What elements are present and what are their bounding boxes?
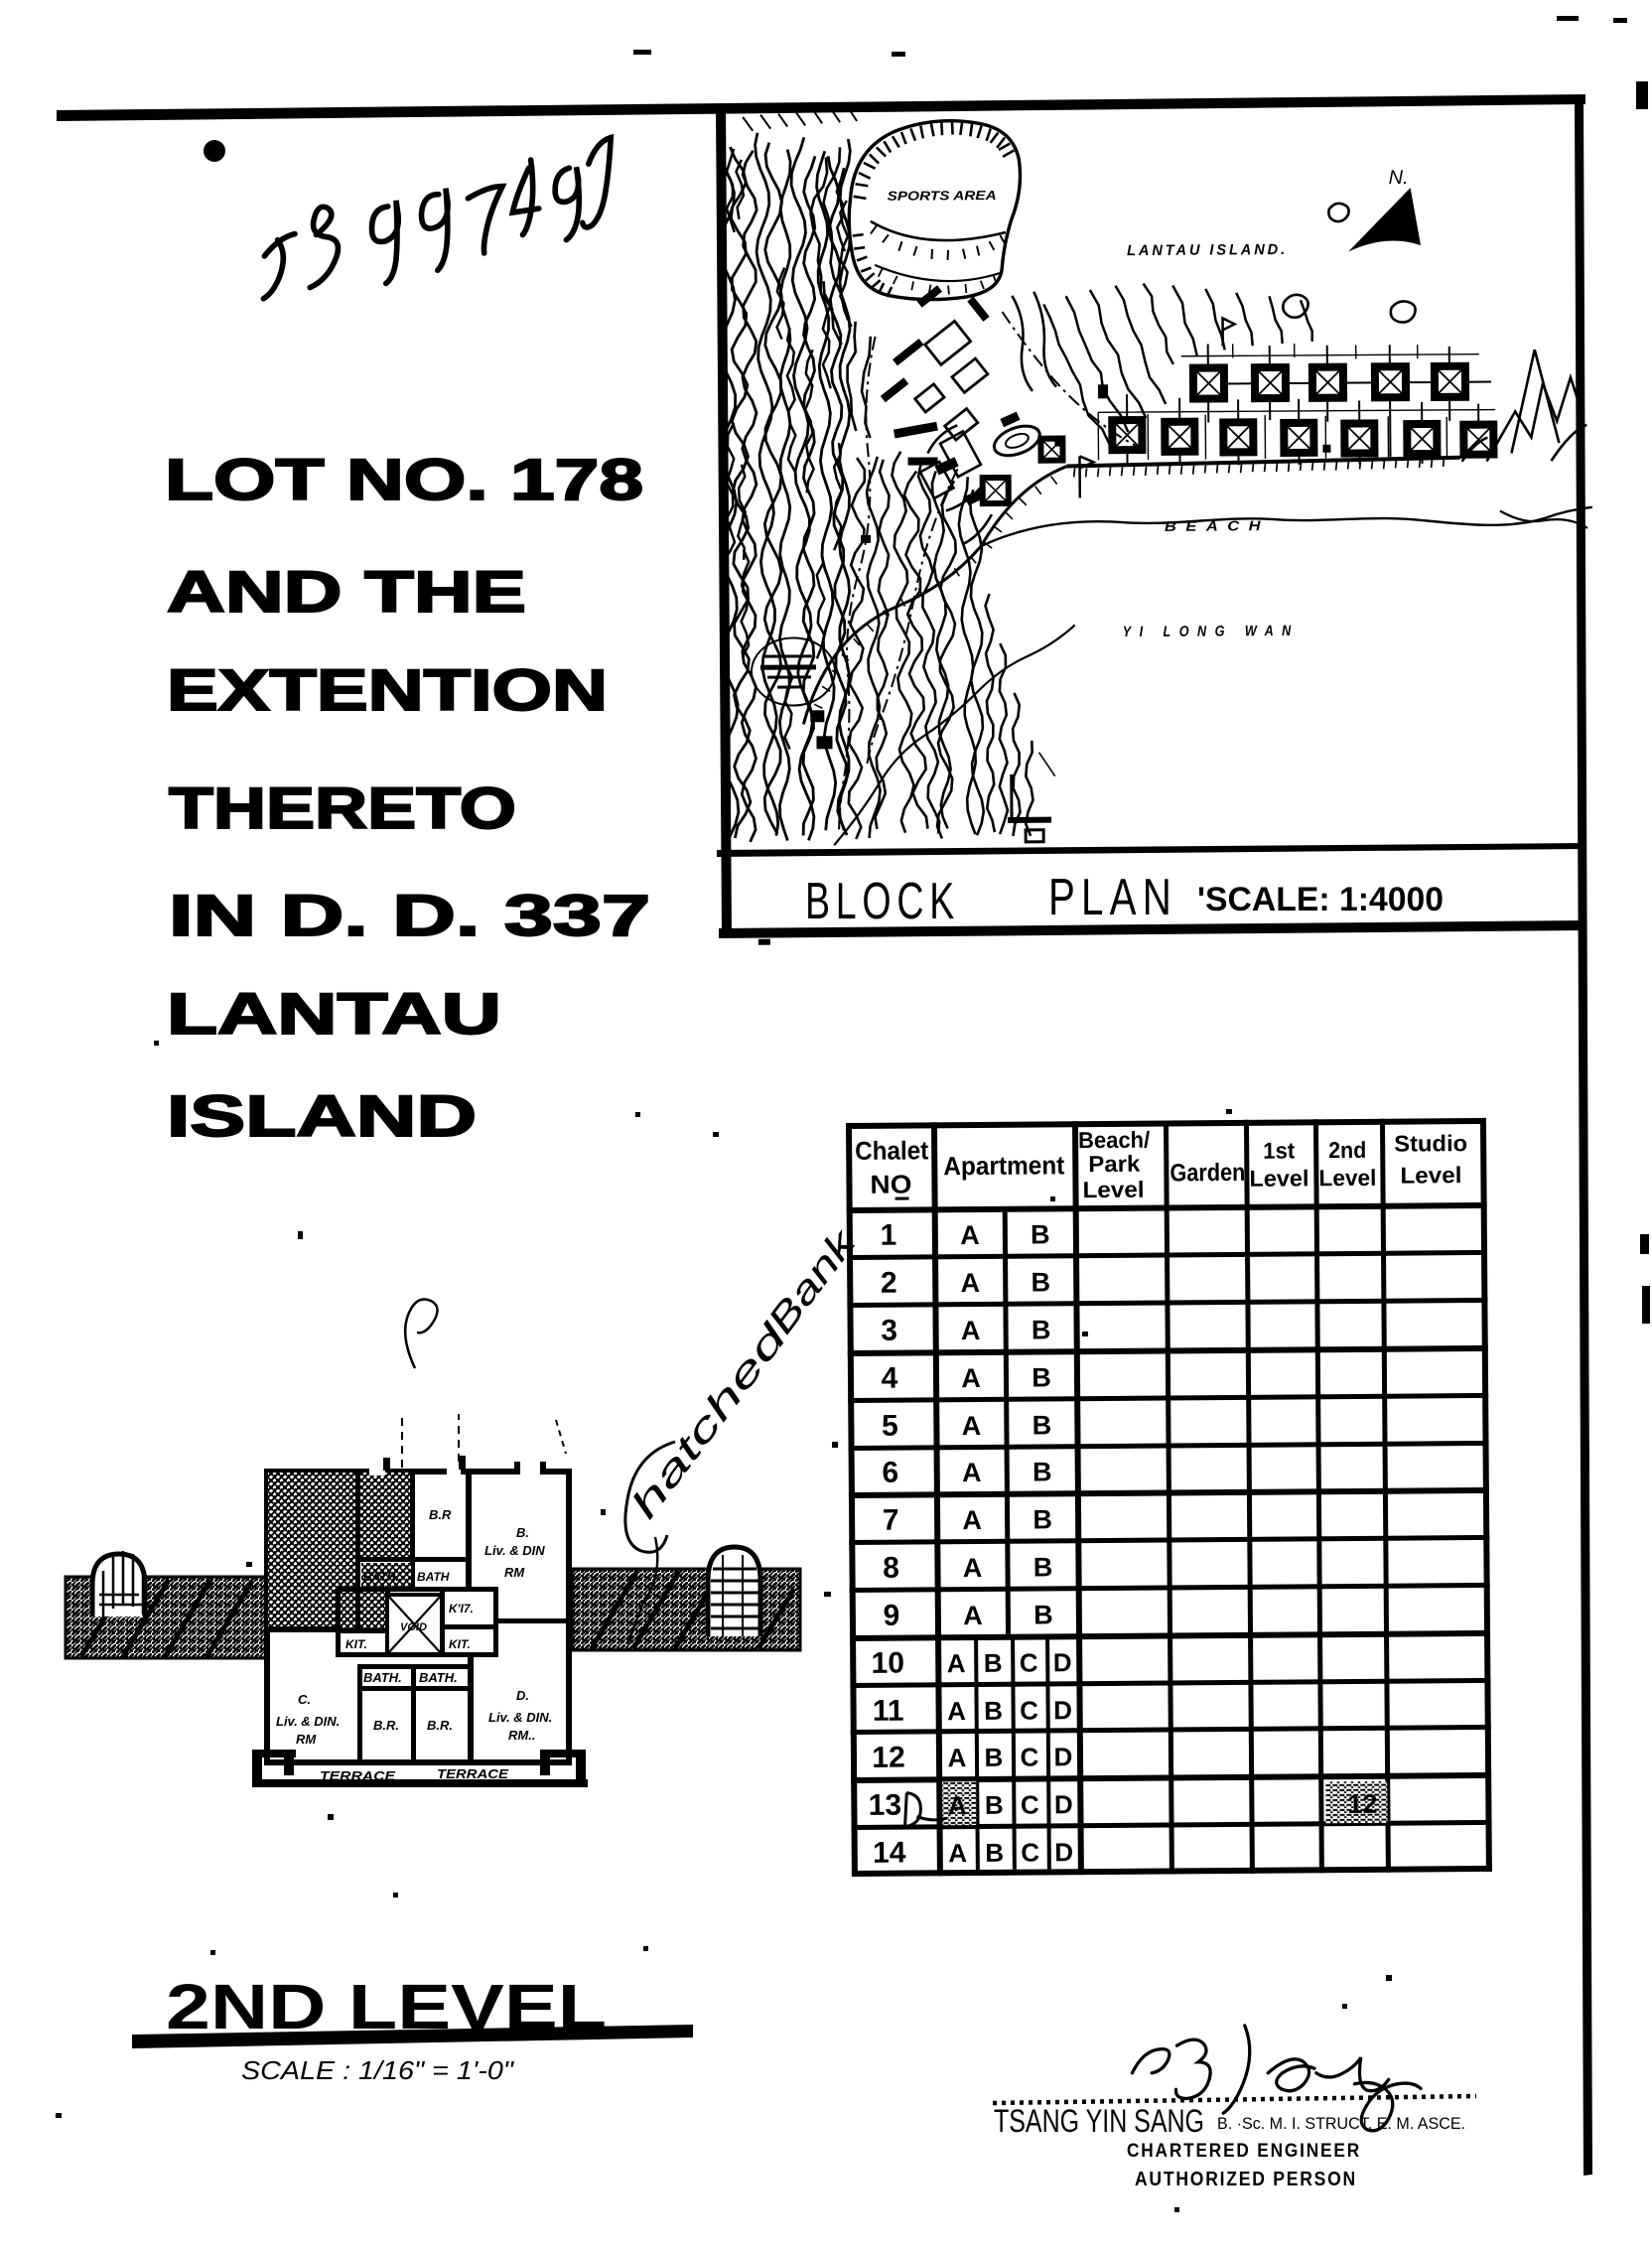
svg-text:2nd: 2nd	[1328, 1137, 1366, 1163]
svg-text:BATH.: BATH.	[419, 1670, 458, 1685]
svg-text:B: B	[1033, 1552, 1053, 1582]
svg-text:C: C	[1020, 1695, 1038, 1725]
svg-text:B: B	[1032, 1362, 1051, 1392]
svg-text:1st: 1st	[1263, 1137, 1296, 1163]
svg-text:A: A	[960, 1220, 980, 1250]
svg-text:RM..: RM..	[508, 1728, 535, 1743]
svg-text:B: B	[1031, 1267, 1050, 1297]
svg-text:B: B	[984, 1648, 1003, 1678]
svg-text:6: 6	[882, 1457, 898, 1489]
svg-text:Level: Level	[1318, 1165, 1376, 1191]
svg-text:B.R.: B.R.	[373, 1718, 399, 1733]
svg-text:KIT.: KIT.	[345, 1637, 367, 1651]
svg-text:5: 5	[882, 1410, 898, 1443]
svg-text:AUTHORIZED PERSON: AUTHORIZED PERSON	[1135, 2169, 1357, 2190]
svg-text:A: A	[947, 1696, 966, 1726]
svg-text:B: B	[984, 1743, 1003, 1772]
svg-text:C: C	[1020, 1647, 1038, 1677]
svg-text:B: B	[985, 1838, 1004, 1868]
svg-text:12: 12	[872, 1742, 905, 1774]
svg-text:B.: B.	[516, 1525, 529, 1540]
svg-text:D: D	[1053, 1647, 1072, 1677]
svg-text:Chalet: Chalet	[855, 1135, 929, 1166]
svg-text:YI LONG WAN: YI LONG WAN	[1123, 623, 1300, 640]
svg-text:C: C	[1020, 1742, 1038, 1771]
svg-text:14: 14	[873, 1837, 906, 1870]
svg-text:B: B	[1031, 1219, 1050, 1249]
svg-text:A: A	[962, 1458, 982, 1487]
svg-text:B. ·Sc. M. I. STRUCT. E.: B. ·Sc. M. I. STRUCT. E. M. ASCE.	[1217, 2114, 1465, 2133]
svg-text:Liv. & DIN: Liv. & DIN	[484, 1543, 545, 1558]
svg-text:LOT NO. 178: LOT NO. 178	[165, 448, 643, 512]
svg-text:THERETO: THERETO	[169, 776, 516, 841]
svg-text:A: A	[963, 1553, 983, 1583]
svg-text:Apartment: Apartment	[943, 1150, 1065, 1181]
svg-text:IN D. D. 337: IN D. D. 337	[169, 884, 650, 948]
svg-text:Garden: Garden	[1170, 1159, 1245, 1188]
svg-text:D: D	[1053, 1695, 1072, 1725]
svg-text:B: B	[984, 1696, 1003, 1726]
svg-text:TERRACE: TERRACE	[437, 1766, 508, 1781]
svg-text:Studio: Studio	[1394, 1130, 1467, 1157]
svg-text:10: 10	[871, 1647, 904, 1680]
svg-text:B: B	[1032, 1315, 1051, 1344]
svg-text:4: 4	[882, 1362, 898, 1395]
svg-text:ISLAND: ISLAND	[167, 1084, 477, 1149]
svg-text:B.R: B.R	[429, 1507, 452, 1522]
svg-text:D: D	[1054, 1789, 1073, 1819]
svg-text:LANTAU: LANTAU	[167, 982, 501, 1047]
svg-text:Liv. & DIN.: Liv. & DIN.	[276, 1714, 340, 1729]
svg-text:D: D	[1054, 1837, 1073, 1867]
svg-text:D: D	[1053, 1742, 1072, 1771]
svg-text:12: 12	[1347, 1789, 1377, 1819]
svg-text:TERRACE: TERRACE	[320, 1768, 395, 1783]
svg-text:2: 2	[881, 1267, 897, 1300]
svg-text:A: A	[947, 1743, 966, 1772]
svg-text:D.: D.	[516, 1688, 529, 1703]
svg-text:SCALE : 1/16" = 1'-0": SCALE : 1/16" = 1'-0"	[241, 2055, 515, 2085]
svg-text:B: B	[1032, 1457, 1052, 1486]
svg-text:8: 8	[883, 1552, 899, 1585]
svg-text:RM: RM	[504, 1565, 525, 1580]
svg-text:Level: Level	[1400, 1162, 1461, 1188]
svg-text:C: C	[1021, 1837, 1039, 1867]
svg-text:7: 7	[883, 1504, 899, 1537]
svg-text:3: 3	[881, 1315, 897, 1347]
svg-text:B: B	[1032, 1504, 1052, 1534]
svg-text:K'I7.: K'I7.	[449, 1602, 474, 1616]
svg-text:PLAN: PLAN	[1048, 869, 1177, 926]
svg-text:SPORTS AREA: SPORTS AREA	[888, 188, 997, 204]
svg-text:1: 1	[880, 1219, 896, 1252]
svg-text:13: 13	[869, 1789, 902, 1822]
svg-text:B: B	[1032, 1410, 1052, 1440]
svg-text:VOID: VOID	[400, 1621, 427, 1633]
svg-text:LANTAU ISLAND.: LANTAU ISLAND.	[1127, 241, 1288, 259]
svg-text:B.R.: B.R.	[427, 1718, 453, 1733]
svg-text:EXTENTION: EXTENTION	[167, 658, 608, 723]
svg-text:B: B	[985, 1790, 1004, 1820]
svg-text:NO: NO	[870, 1169, 911, 1198]
svg-text:Beach/: Beach/	[1078, 1127, 1151, 1154]
svg-text:BATH: BATH	[417, 1570, 450, 1584]
svg-text:Park: Park	[1088, 1151, 1140, 1177]
svg-text:KIT.: KIT.	[449, 1637, 471, 1651]
svg-text:BATH.: BATH.	[363, 1670, 402, 1685]
svg-text:Liv. & DIN.: Liv. & DIN.	[488, 1710, 552, 1725]
svg-text:BLOCK: BLOCK	[805, 873, 960, 930]
svg-text:AND THE: AND THE	[167, 560, 526, 625]
svg-text:C: C	[1021, 1789, 1039, 1819]
svg-text:RM: RM	[296, 1732, 317, 1747]
svg-text:N.: N.	[1388, 167, 1408, 189]
svg-text:Level: Level	[1249, 1165, 1308, 1191]
svg-text:11: 11	[873, 1695, 904, 1728]
svg-text:A: A	[962, 1411, 982, 1441]
svg-text:A: A	[948, 1790, 967, 1820]
svg-text:TSANG YIN SANG: TSANG YIN SANG	[994, 2103, 1204, 2139]
svg-text:'SCALE: 1:4000: 'SCALE: 1:4000	[1197, 881, 1444, 918]
svg-text:A: A	[961, 1316, 981, 1345]
svg-text:Level: Level	[1082, 1177, 1144, 1202]
svg-text:B: B	[1033, 1600, 1053, 1629]
svg-text:A: A	[948, 1838, 967, 1868]
svg-text:A: A	[947, 1648, 966, 1678]
svg-text:A: A	[961, 1363, 981, 1393]
svg-text:9: 9	[883, 1600, 899, 1632]
svg-text:C.: C.	[298, 1692, 311, 1707]
svg-text:A: A	[962, 1505, 982, 1535]
svg-text:BATH.: BATH.	[363, 1570, 399, 1584]
svg-text:A: A	[960, 1268, 980, 1298]
svg-text:CHARTERED ENGINEER: CHARTERED ENGINEER	[1127, 2141, 1361, 2162]
svg-text:A: A	[963, 1601, 983, 1630]
